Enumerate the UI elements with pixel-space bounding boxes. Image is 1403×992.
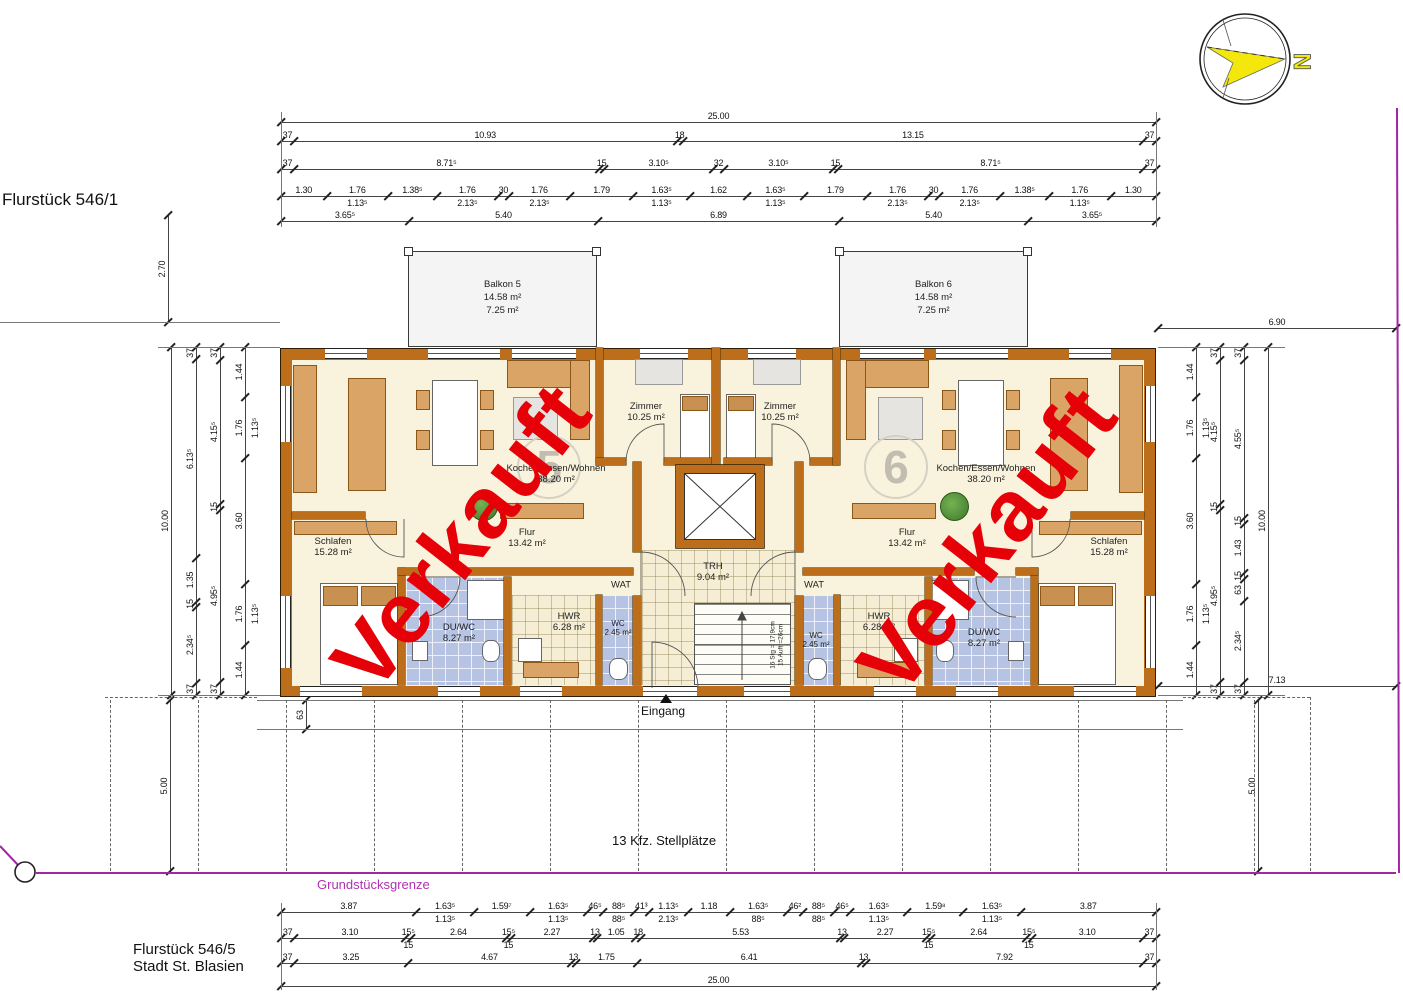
parcel-label-top: Flurstück 546/1 [2, 190, 118, 210]
floorplan-canvas: Flurstück 546/1 Flurstück 546/5 Stadt St… [0, 0, 1403, 992]
boundary-label: Grundstücksgrenze [317, 877, 430, 892]
parcel-label-bottom-1: Flurstück 546/5 [133, 941, 236, 958]
entrance-label: Eingang [641, 704, 685, 718]
entrance-marker-icon [660, 694, 672, 703]
parcel-label-bottom-2: Stadt St. Blasien [133, 958, 244, 975]
parking-label: 13 Kfz. Stellplätze [612, 833, 716, 848]
